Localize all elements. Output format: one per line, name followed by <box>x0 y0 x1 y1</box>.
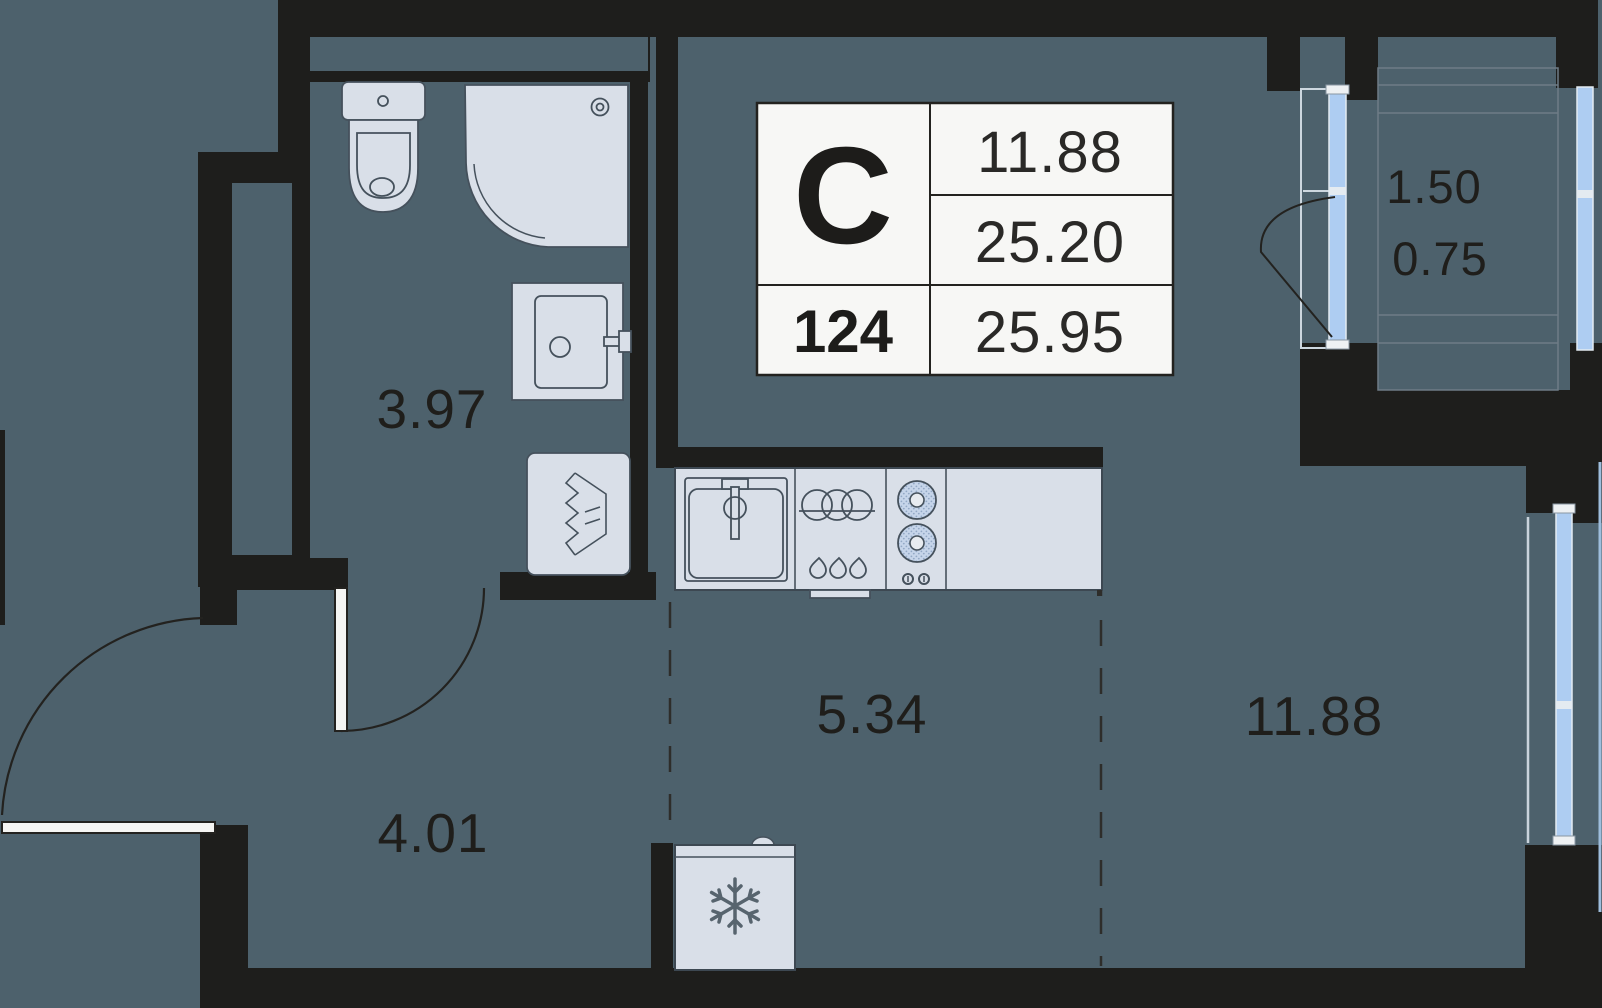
hallway-area-label: 4.01 <box>377 802 488 864</box>
apartment-info-card[interactable]: С 124 11.88 25.20 25.95 <box>757 103 1173 375</box>
balcony-area-full-label: 1.50 <box>1386 160 1481 213</box>
bathroom-area-label: 3.97 <box>376 378 487 440</box>
toilet-icon <box>342 82 425 212</box>
balcony-glazing <box>1577 87 1593 350</box>
living-room-area-label: 11.88 <box>1245 685 1384 747</box>
unit-total-area: 25.95 <box>975 300 1125 365</box>
fridge-icon <box>675 837 795 970</box>
unit-room-area: 11.88 <box>977 120 1123 185</box>
kitchen-area-label: 5.34 <box>816 683 927 745</box>
unit-type-letter: С <box>793 119 893 273</box>
unit-living-area: 25.20 <box>975 210 1125 275</box>
floor-plan: С 124 11.88 25.20 25.95 3.97 4.01 5.34 1… <box>0 0 1602 1008</box>
unit-number: 124 <box>793 298 894 365</box>
balcony-area-reduced-label: 0.75 <box>1392 232 1487 285</box>
bathroom-sink-icon <box>512 283 631 400</box>
washing-machine-icon <box>527 453 630 575</box>
